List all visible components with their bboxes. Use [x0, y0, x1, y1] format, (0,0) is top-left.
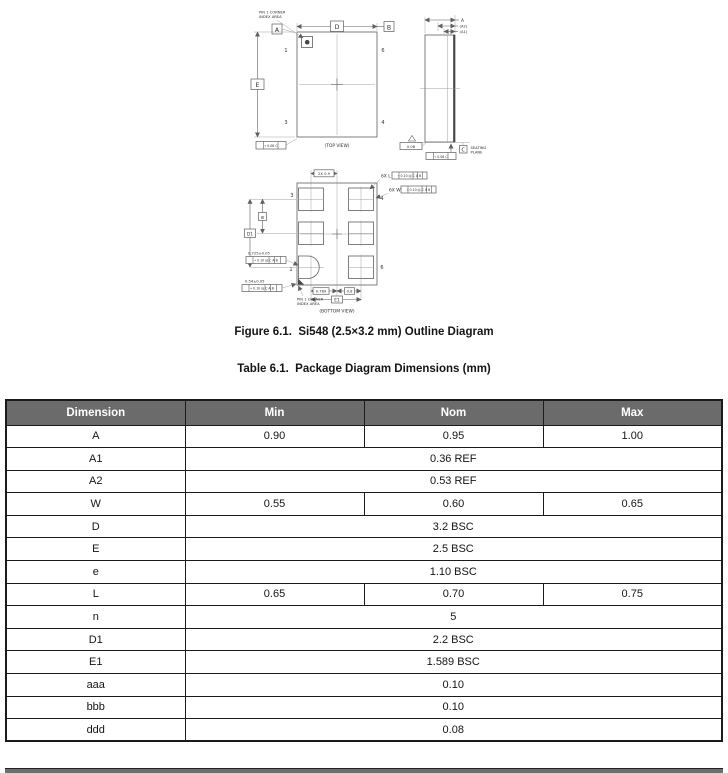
nom-cell: 0.60 — [364, 493, 543, 516]
column-header-dimension: Dimension — [6, 400, 185, 425]
table-row: D3.2 BSC — [6, 515, 722, 538]
dimension-cell: E1 — [6, 651, 185, 674]
pad-length-tol-frame: ⌖ 0.10 Ⓜ C A B — [398, 174, 422, 178]
bottom-view-drawing: 3 1 4 6 2X 0.9 6X L ⌖ 0.10 Ⓜ C A B 6X W … — [242, 170, 436, 315]
datum-b-label: B — [387, 24, 391, 31]
dim-label-d: D — [335, 24, 340, 31]
dimension-cell: n — [6, 606, 185, 629]
dimensions-table-body: A0.900.951.00A10.36 REFA20.53 REFW0.550.… — [6, 425, 722, 741]
max-cell: 0.75 — [543, 583, 722, 606]
pin-number: 6 — [380, 265, 383, 271]
pad-width-label: 6X W — [389, 188, 401, 194]
value-cell-span: 1.589 BSC — [185, 651, 722, 674]
dim-label-e-pitch: e — [261, 215, 264, 221]
table-row: E2.5 BSC — [6, 538, 722, 561]
pad-width-tol-frame: ⌖ 0.10 Ⓜ C A B — [407, 188, 431, 192]
dimension-cell: A1 — [6, 448, 185, 471]
dimension-cell: D1 — [6, 628, 185, 651]
dim-label-e: E — [256, 82, 260, 89]
table-row: E11.589 BSC — [6, 651, 722, 674]
dimension-cell: W — [6, 493, 185, 516]
side-view-drawing: A (A2) (A1) C SEATING PLANE 0.08 ⌖ 0.08 … — [400, 15, 487, 160]
pin-number: 3 — [290, 193, 293, 199]
table-row: A0.900.951.00 — [6, 425, 722, 448]
dimension-cell: L — [6, 583, 185, 606]
column-header-nom: Nom — [364, 400, 543, 425]
bottom-view-label: (BOTTOM VIEW) — [319, 309, 354, 315]
outline-diagram: D B A E PIN 1 CORNER INDEX AREA 1 3 6 4 — [0, 0, 728, 320]
dimension-cell: ddd — [6, 719, 185, 742]
value-cell-span: 1.10 BSC — [185, 561, 722, 584]
dim-label-d1: D1 — [247, 232, 253, 238]
dim-label-e1: E1 — [334, 298, 340, 304]
value-cell-span: 3.2 BSC — [185, 515, 722, 538]
datasheet-page: D B A E PIN 1 CORNER INDEX AREA 1 3 6 4 — [0, 0, 728, 773]
pin1-corner-mark — [298, 279, 304, 285]
max-cell: 0.65 — [543, 493, 722, 516]
flatness-frame: 0.08 — [407, 145, 416, 149]
value-cell-span: 0.36 REF — [185, 448, 722, 471]
dim-label-a: A — [461, 18, 464, 24]
table-row: bbb0.10 — [6, 696, 722, 719]
value-cell-span: 0.53 REF — [185, 470, 722, 493]
min-cell: 0.55 — [185, 493, 364, 516]
top-view-drawing: D B A E PIN 1 CORNER INDEX AREA 1 3 6 4 — [251, 11, 394, 150]
table-row: ddd0.08 — [6, 719, 722, 742]
pin-number: 6 — [381, 48, 384, 54]
min-cell: 0.65 — [185, 583, 364, 606]
column-header-max: Max — [543, 400, 722, 425]
dim-label-a1: (A1) — [460, 30, 468, 34]
pin1-note: INDEX AREA — [259, 15, 282, 19]
table-row: aaa0.10 — [6, 674, 722, 697]
pin-number: 3 — [284, 120, 287, 126]
nom-cell: 0.95 — [364, 425, 543, 448]
seating-plane-label: SEATING — [471, 146, 487, 150]
pin1-note: PIN 1 CORNER — [259, 11, 286, 15]
pin1-note: INDEX AREA — [297, 302, 320, 306]
table-header-row: Dimension Min Nom Max — [6, 400, 722, 425]
value-cell-span: 5 — [185, 606, 722, 629]
dimensions-table: Dimension Min Nom Max A0.900.951.00A10.3… — [5, 399, 723, 742]
dimension-cell: bbb — [6, 696, 185, 719]
min-cell: 0.90 — [185, 425, 364, 448]
max-cell: 1.00 — [543, 425, 722, 448]
position-frame: ⌖ 0.08 C — [434, 155, 448, 159]
table-row: A20.53 REF — [6, 470, 722, 493]
dimension-cell: D — [6, 515, 185, 538]
nom-cell: 0.70 — [364, 583, 543, 606]
pin1-x-dim: 0.725±0.05 — [248, 252, 271, 256]
pin1-y-dim: 0.54±0.05 — [245, 280, 265, 284]
dimension-cell: A — [6, 425, 185, 448]
table-row: e1.10 BSC — [6, 561, 722, 584]
column-header-min: Min — [185, 400, 364, 425]
pin-number: 1 — [284, 48, 287, 54]
dimension-cell: aaa — [6, 674, 185, 697]
pin-number: 1 — [289, 267, 292, 273]
seating-plane-label: PLANE — [471, 151, 484, 155]
table-row: D12.2 BSC — [6, 628, 722, 651]
tolerance-frame: ⌖ 0.08 C — [264, 144, 278, 148]
dim-top-label: 2X 0.9 — [318, 172, 331, 176]
figure-caption: Figure 6.1. Si548 (2.5×3.2 mm) Outline D… — [0, 326, 728, 338]
dim-label-a2: (A2) — [460, 25, 468, 29]
table-title: Table 6.1. Package Diagram Dimensions (m… — [0, 363, 728, 375]
table-row: n5 — [6, 606, 722, 629]
dim-right-half: 0.8 — [347, 290, 354, 294]
next-table-header-partial — [5, 768, 723, 773]
value-cell-span: 0.08 — [185, 719, 722, 742]
top-view-label: (TOP VIEW) — [324, 143, 349, 149]
value-cell-span: 0.10 — [185, 696, 722, 719]
table-row: L0.650.700.75 — [6, 583, 722, 606]
pin1-y-tol-frame: ⌖ 0.10 Ⓜ C A B — [250, 287, 274, 291]
table-row: W0.550.600.65 — [6, 493, 722, 516]
dimension-cell: E — [6, 538, 185, 561]
datum-c-label: C — [461, 147, 465, 153]
pin-number: 4 — [381, 120, 384, 126]
pin1-x-tol-frame: ⌖ 0.10 Ⓜ C A B — [254, 259, 278, 263]
pad-length-label: 6X L — [381, 174, 391, 180]
pin1-index-dot — [305, 40, 310, 45]
value-cell-span: 2.5 BSC — [185, 538, 722, 561]
value-cell-span: 0.10 — [185, 674, 722, 697]
pin-number: 4 — [380, 196, 383, 202]
dimension-cell: A2 — [6, 470, 185, 493]
dim-left-half: 0.789 — [316, 290, 327, 294]
dimension-cell: e — [6, 561, 185, 584]
value-cell-span: 2.2 BSC — [185, 628, 722, 651]
table-row: A10.36 REF — [6, 448, 722, 471]
pin1-note: PIN 1 CORNER — [297, 298, 324, 302]
